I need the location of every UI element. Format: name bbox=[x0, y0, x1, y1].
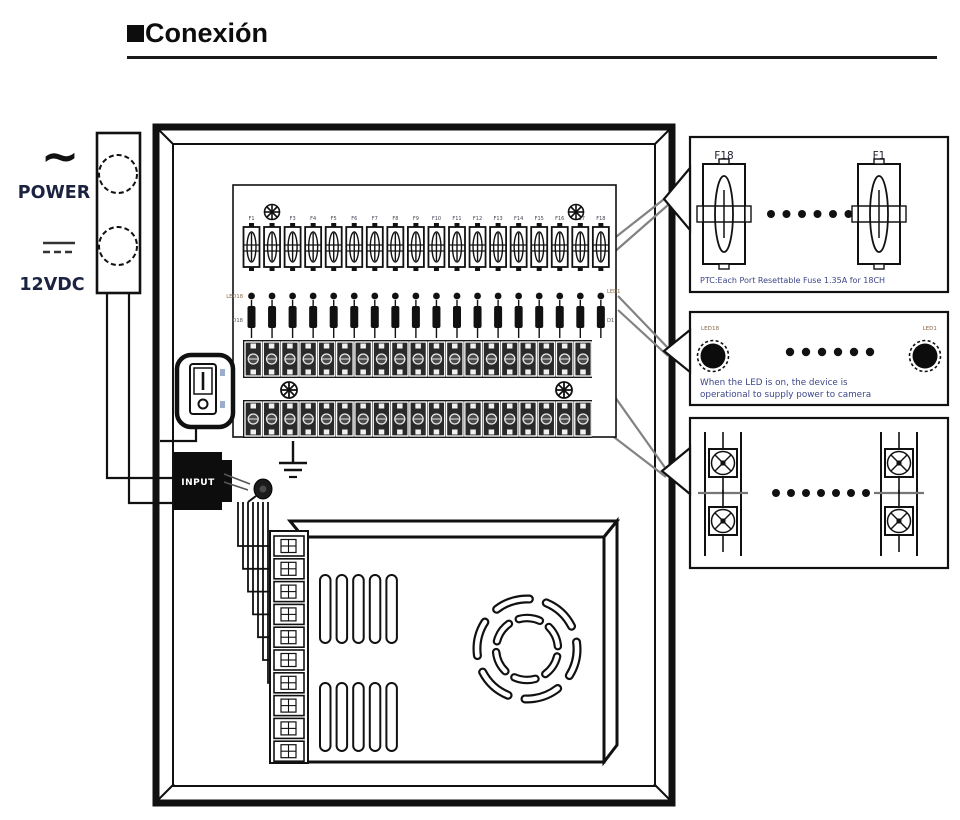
diagram-shape bbox=[269, 430, 275, 435]
strip-cell bbox=[465, 342, 482, 376]
dot bbox=[862, 489, 870, 497]
diagram-shape bbox=[391, 306, 399, 328]
dot bbox=[818, 348, 826, 356]
diagram-shape bbox=[434, 267, 439, 271]
led-dot bbox=[269, 293, 276, 300]
diagram-shape bbox=[415, 370, 421, 375]
led-dot bbox=[248, 293, 255, 300]
diagram-shape bbox=[393, 267, 398, 271]
diagram-shape bbox=[544, 370, 550, 375]
diagram-shape bbox=[496, 223, 501, 227]
diagram-shape bbox=[372, 223, 377, 227]
diagram-shape bbox=[537, 267, 542, 271]
psu-terminal bbox=[274, 718, 304, 738]
dot bbox=[850, 348, 858, 356]
terminal-strip-upper bbox=[243, 340, 592, 378]
psu-terminal bbox=[274, 741, 304, 761]
dot bbox=[798, 210, 806, 218]
diagram-shape bbox=[721, 519, 726, 524]
connection-diagram: ~ POWER 12VDC bbox=[0, 0, 960, 820]
diagram-shape bbox=[474, 306, 482, 328]
fuse bbox=[428, 223, 444, 271]
strip-cell bbox=[483, 342, 500, 376]
diagram-shape bbox=[324, 430, 330, 435]
dc-symbol-icon bbox=[43, 243, 75, 252]
diagram-shape bbox=[289, 306, 297, 328]
strip-cell bbox=[318, 342, 335, 376]
fuse bbox=[244, 223, 260, 271]
diagram-shape bbox=[578, 267, 583, 271]
fuse bbox=[470, 223, 486, 271]
diagram-shape bbox=[516, 267, 521, 271]
diagram-shape bbox=[557, 223, 562, 227]
diagram-shape bbox=[475, 223, 480, 227]
diagram-shape bbox=[496, 267, 501, 271]
strip-cell bbox=[337, 342, 354, 376]
psu-terminal bbox=[274, 604, 304, 624]
strip-cell bbox=[373, 342, 390, 376]
diagram-shape bbox=[287, 370, 293, 375]
strip-cell bbox=[428, 402, 445, 436]
diagram-shape bbox=[745, 206, 751, 222]
dot bbox=[786, 348, 794, 356]
dot bbox=[802, 489, 810, 497]
diagram-shape bbox=[415, 344, 421, 349]
diagram-shape bbox=[475, 267, 480, 271]
strip-cell bbox=[355, 342, 372, 376]
strip-cell bbox=[410, 342, 427, 376]
diagram-shape bbox=[305, 430, 311, 435]
fuse-label: F10 bbox=[432, 216, 441, 222]
diagram-shape bbox=[525, 430, 531, 435]
vent-slot bbox=[337, 683, 348, 751]
callout-led-left-label: LED18 bbox=[701, 326, 720, 332]
diagram-shape bbox=[900, 206, 906, 222]
fuse-label: F16 bbox=[555, 216, 564, 222]
diagram-shape bbox=[576, 306, 584, 328]
diagram-shape bbox=[507, 404, 512, 409]
diagram-shape bbox=[397, 404, 403, 409]
strip-cell bbox=[245, 402, 262, 436]
diagram-shape bbox=[515, 306, 523, 328]
strip-cell bbox=[263, 342, 280, 376]
dot bbox=[814, 210, 822, 218]
dot bbox=[767, 210, 775, 218]
led-dot bbox=[515, 293, 522, 300]
power-connector bbox=[97, 133, 140, 293]
diagram-shape bbox=[251, 404, 257, 409]
diagram-shape bbox=[697, 206, 703, 222]
psu-terminal bbox=[274, 582, 304, 602]
diagram-shape bbox=[249, 267, 254, 271]
fuse-label: F15 bbox=[535, 216, 544, 222]
fuse bbox=[367, 223, 383, 271]
diagram-shape bbox=[507, 430, 512, 435]
strip-cell bbox=[538, 402, 555, 436]
diagram-shape bbox=[470, 344, 476, 349]
diagram-shape bbox=[270, 223, 275, 227]
diagram-shape bbox=[874, 264, 884, 269]
power-switch bbox=[177, 355, 233, 427]
diagram-shape bbox=[270, 267, 275, 271]
diagram-shape bbox=[434, 370, 440, 375]
callout-fuse-caption: PTC:Each Port Resettable Fuse 1.35A for … bbox=[700, 276, 885, 285]
dot bbox=[845, 210, 853, 218]
strip-cell bbox=[501, 342, 517, 376]
psu-terminal bbox=[274, 650, 304, 670]
power-labels: ~ POWER 12VDC bbox=[18, 129, 91, 295]
ac-power-label: POWER bbox=[18, 183, 91, 203]
dot bbox=[866, 348, 874, 356]
led-dot bbox=[330, 293, 337, 300]
dot bbox=[787, 489, 795, 497]
diagram-shape bbox=[432, 306, 440, 328]
diagram-shape bbox=[287, 344, 293, 349]
diagram-shape bbox=[578, 223, 583, 227]
callout-led-right-label: LED1 bbox=[922, 326, 937, 332]
diagram-shape bbox=[309, 306, 317, 328]
strip-cell bbox=[245, 342, 262, 376]
diagram-shape bbox=[360, 404, 366, 409]
fuse bbox=[408, 223, 424, 271]
diagram-shape bbox=[251, 430, 257, 435]
diagram-shape bbox=[544, 430, 550, 435]
psu-terminal bbox=[274, 559, 304, 579]
diagram-shape bbox=[248, 306, 256, 328]
dot bbox=[832, 489, 840, 497]
board-screw-left bbox=[265, 205, 280, 220]
diagram-shape bbox=[434, 223, 439, 227]
diagram-shape bbox=[412, 306, 420, 328]
strip-cell bbox=[575, 342, 592, 376]
strip-cell bbox=[520, 342, 537, 376]
strip-cell bbox=[556, 402, 573, 436]
diagram-shape bbox=[470, 404, 476, 409]
strip-cell bbox=[501, 402, 517, 436]
fuse bbox=[531, 223, 547, 271]
terminal-strip-lower bbox=[243, 400, 592, 438]
ground-symbol-icon bbox=[279, 441, 307, 477]
diagram-shape bbox=[535, 306, 543, 328]
strip-cell bbox=[263, 402, 280, 436]
fuse bbox=[305, 223, 321, 271]
diagram-shape bbox=[452, 404, 458, 409]
diagram-shape bbox=[516, 223, 521, 227]
diagram-shape bbox=[305, 370, 311, 375]
diagram-shape bbox=[360, 344, 366, 349]
diagram-shape bbox=[379, 344, 385, 349]
dot bbox=[783, 210, 791, 218]
diagram-shape bbox=[330, 306, 338, 328]
fuse-label: F13 bbox=[493, 216, 502, 222]
diagram-shape bbox=[544, 344, 550, 349]
diagram-shape bbox=[562, 404, 568, 409]
fuse-label: F6 bbox=[351, 216, 357, 222]
strip-cell bbox=[428, 342, 445, 376]
psu-terminal bbox=[274, 673, 304, 693]
diagram-shape bbox=[874, 159, 884, 164]
diagram-shape bbox=[580, 430, 586, 435]
input-label: INPUT bbox=[181, 478, 215, 488]
diagram-shape bbox=[287, 404, 293, 409]
vent-slot bbox=[337, 575, 348, 643]
fuse bbox=[572, 223, 588, 271]
diagram-shape bbox=[489, 344, 495, 349]
led-dot bbox=[474, 293, 481, 300]
callout-fuses: F18 F1 PTC:Each Port Resettable Fuse 1.3… bbox=[664, 137, 948, 292]
diagram-shape bbox=[269, 370, 275, 375]
diagram-shape bbox=[897, 461, 902, 466]
diagram-shape bbox=[371, 306, 379, 328]
diagram-shape bbox=[455, 223, 460, 227]
diagram-shape bbox=[324, 404, 330, 409]
diagram-shape bbox=[287, 430, 293, 435]
fuse bbox=[264, 223, 280, 271]
diagram-shape bbox=[342, 430, 348, 435]
strip-cell bbox=[575, 402, 592, 436]
fuse-label: F7 bbox=[372, 216, 378, 222]
fuse bbox=[490, 223, 506, 271]
callout-terminals bbox=[662, 418, 948, 568]
strip-cell bbox=[465, 402, 482, 436]
diode-row-left-label: D18 bbox=[232, 318, 243, 324]
input-block: INPUT bbox=[174, 452, 232, 510]
fuse-symbol bbox=[852, 159, 906, 269]
led-dot bbox=[536, 293, 543, 300]
fuse-label: F9 bbox=[413, 216, 419, 222]
diagram-shape bbox=[413, 223, 418, 227]
led-dot bbox=[413, 293, 420, 300]
terminal-block-symbol bbox=[698, 432, 748, 556]
vent-slot bbox=[353, 575, 364, 643]
fuse bbox=[285, 223, 301, 271]
led-dot bbox=[433, 293, 440, 300]
vent-slot bbox=[386, 683, 397, 751]
diagram-shape bbox=[360, 430, 366, 435]
diagram-shape bbox=[305, 404, 311, 409]
diagram-shape bbox=[290, 267, 295, 271]
strip-cell bbox=[337, 402, 354, 436]
diagram-shape bbox=[470, 370, 476, 375]
diagram-shape bbox=[269, 404, 275, 409]
fuse bbox=[346, 223, 362, 271]
diagram-shape bbox=[290, 223, 295, 227]
callout-led-caption-2: operational to supply power to camera bbox=[700, 390, 871, 400]
diagram-shape bbox=[379, 430, 385, 435]
strip-screw-right bbox=[556, 382, 572, 398]
fuse bbox=[326, 223, 342, 271]
diagram-shape bbox=[525, 404, 531, 409]
diagram-shape bbox=[434, 404, 440, 409]
diagram-shape bbox=[453, 306, 461, 328]
strip-cell bbox=[447, 402, 464, 436]
diode-row-right-label: D1 bbox=[607, 318, 614, 324]
diagram-shape bbox=[721, 461, 726, 466]
strip-cell bbox=[355, 402, 372, 436]
diagram-shape bbox=[598, 223, 603, 227]
fuse bbox=[552, 223, 568, 271]
diagram-shape bbox=[580, 344, 586, 349]
led-dot bbox=[371, 293, 378, 300]
diagram-shape bbox=[489, 404, 495, 409]
strip-cell bbox=[373, 402, 390, 436]
strip-cell bbox=[392, 402, 409, 436]
strip-cell bbox=[282, 402, 299, 436]
strip-cell bbox=[520, 402, 537, 436]
diagram-shape bbox=[415, 430, 421, 435]
led-row-left-label: LED18 bbox=[226, 294, 243, 300]
diagram-shape bbox=[580, 370, 586, 375]
strip-cell bbox=[300, 402, 317, 436]
diagram-shape bbox=[452, 370, 458, 375]
fuse bbox=[449, 223, 465, 271]
led-dot bbox=[454, 293, 461, 300]
diagram-shape bbox=[562, 370, 568, 375]
vent-slot bbox=[386, 575, 397, 643]
strip-cell bbox=[392, 342, 409, 376]
psu-feed-wires bbox=[238, 502, 272, 683]
dc-power-label: 12VDC bbox=[19, 275, 84, 295]
diagram-shape bbox=[331, 223, 336, 227]
board-screw-right bbox=[569, 205, 584, 220]
diagram-shape bbox=[397, 344, 403, 349]
terminal-block-symbol bbox=[874, 432, 924, 556]
psu-terminal bbox=[274, 627, 304, 647]
diagram-shape bbox=[489, 430, 495, 435]
led-dot bbox=[351, 293, 358, 300]
fuse-label: F8 bbox=[392, 216, 398, 222]
diagram-shape bbox=[342, 344, 348, 349]
diagram-shape bbox=[311, 223, 316, 227]
fuse-label: F1 bbox=[248, 216, 254, 222]
diagram-shape bbox=[251, 370, 257, 375]
fuse bbox=[511, 223, 527, 271]
diagram-shape bbox=[268, 306, 276, 328]
callout-led-caption-1: When the LED is on, the device is bbox=[700, 378, 848, 388]
led-dot bbox=[597, 293, 604, 300]
fuse bbox=[387, 223, 403, 271]
diagram-shape bbox=[342, 370, 348, 375]
diagram-shape bbox=[897, 519, 902, 524]
fuse-label: F5 bbox=[331, 216, 337, 222]
dot bbox=[829, 210, 837, 218]
vent-slot bbox=[320, 683, 331, 751]
diagram-shape bbox=[562, 430, 568, 435]
vent-slot bbox=[370, 575, 381, 643]
psu-terminal bbox=[274, 696, 304, 716]
diagram-shape bbox=[598, 267, 603, 271]
ac-symbol: ~ bbox=[41, 129, 80, 183]
vent-slot bbox=[353, 683, 364, 751]
fuse-label: F11 bbox=[452, 216, 461, 222]
diagram-shape bbox=[556, 306, 564, 328]
diagram-shape bbox=[719, 264, 729, 269]
diagram-shape bbox=[580, 404, 586, 409]
fuse bbox=[593, 223, 609, 271]
strip-cell bbox=[300, 342, 317, 376]
diagram-shape bbox=[331, 267, 336, 271]
dot bbox=[834, 348, 842, 356]
diagram-shape bbox=[269, 344, 275, 349]
diagram-shape bbox=[352, 223, 357, 227]
led-dot bbox=[289, 293, 296, 300]
diagram-shape bbox=[249, 223, 254, 227]
fuse-label: F18 bbox=[596, 216, 605, 222]
led-dot bbox=[310, 293, 317, 300]
strip-cell bbox=[483, 402, 500, 436]
strip-cell bbox=[556, 342, 573, 376]
fuse-symbol bbox=[697, 159, 751, 269]
dot bbox=[847, 489, 855, 497]
vent-slot bbox=[370, 683, 381, 751]
led-dot bbox=[556, 293, 563, 300]
fuse-label: F3 bbox=[290, 216, 296, 222]
diagram-shape bbox=[342, 404, 348, 409]
diagram-shape bbox=[525, 344, 531, 349]
fuse-label: F12 bbox=[473, 216, 482, 222]
manual-page: Conexión ~ POWER 12VDC bbox=[0, 0, 960, 820]
strip-cell bbox=[538, 342, 555, 376]
strip-cell bbox=[410, 402, 427, 436]
diagram-shape bbox=[507, 370, 512, 375]
led-dot bbox=[392, 293, 399, 300]
psu-terminal bbox=[274, 536, 304, 556]
diagram-shape bbox=[324, 344, 330, 349]
diagram-shape bbox=[372, 267, 377, 271]
diagram-shape bbox=[719, 159, 729, 164]
strip-cell bbox=[447, 342, 464, 376]
diagram-shape bbox=[434, 344, 440, 349]
diagram-shape bbox=[537, 223, 542, 227]
dot bbox=[772, 489, 780, 497]
led-dot bbox=[577, 293, 584, 300]
diagram-shape bbox=[305, 344, 311, 349]
diagram-shape bbox=[455, 267, 460, 271]
diagram-shape bbox=[494, 306, 502, 328]
diagram-shape bbox=[470, 430, 476, 435]
diagram-shape bbox=[397, 430, 403, 435]
diagram-shape bbox=[544, 404, 550, 409]
callout-leds: LED18 LED1 When the LED is on, the devic… bbox=[664, 312, 948, 405]
diagram-shape bbox=[452, 430, 458, 435]
diagram-shape bbox=[489, 370, 495, 375]
diagram-shape bbox=[415, 404, 421, 409]
fuse-label: F4 bbox=[310, 216, 316, 222]
diagram-shape bbox=[434, 430, 440, 435]
diagram-shape bbox=[352, 267, 357, 271]
diagram-shape bbox=[251, 344, 257, 349]
diagram-shape bbox=[397, 370, 403, 375]
diagram-shape bbox=[379, 404, 385, 409]
diagram-shape bbox=[324, 370, 330, 375]
diagram-shape bbox=[360, 370, 366, 375]
fuse-label: F14 bbox=[514, 216, 523, 222]
diagram-shape bbox=[393, 223, 398, 227]
strip-cell bbox=[318, 402, 335, 436]
diagram-shape bbox=[413, 267, 418, 271]
diagram-shape bbox=[379, 370, 385, 375]
diagram-shape bbox=[507, 344, 512, 349]
diagram-shape bbox=[597, 306, 605, 328]
diagram-shape bbox=[525, 370, 531, 375]
led-dot bbox=[495, 293, 502, 300]
diagram-shape bbox=[557, 267, 562, 271]
dot bbox=[802, 348, 810, 356]
diagram-shape bbox=[311, 267, 316, 271]
diagram-shape bbox=[852, 206, 858, 222]
strip-screw-left bbox=[281, 382, 297, 398]
dot bbox=[817, 489, 825, 497]
